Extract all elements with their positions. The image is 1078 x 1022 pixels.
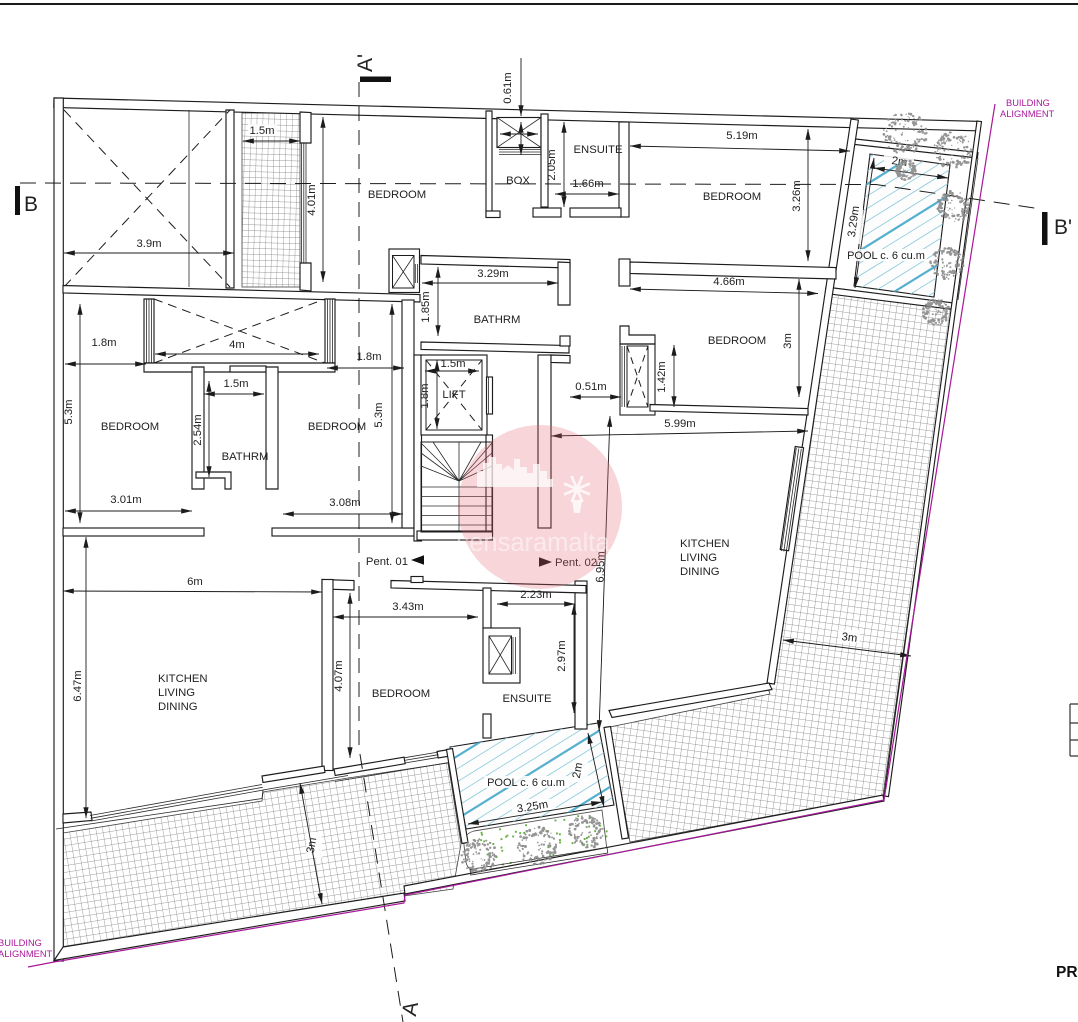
svg-text:1.42m: 1.42m bbox=[656, 361, 668, 392]
svg-text:4.66m: 4.66m bbox=[713, 276, 744, 288]
svg-text:3.01m: 3.01m bbox=[110, 494, 141, 506]
svg-text:BEDROOM: BEDROOM bbox=[368, 189, 426, 201]
svg-text:ALIGNMENT: ALIGNMENT bbox=[0, 949, 53, 959]
svg-text:POOL c. 6 cu.m: POOL c. 6 cu.m bbox=[847, 250, 925, 262]
svg-text:1.66m: 1.66m bbox=[572, 178, 603, 190]
svg-text:1.85m: 1.85m bbox=[420, 291, 432, 322]
svg-text:1.8m: 1.8m bbox=[419, 383, 431, 408]
svg-text:1.8m: 1.8m bbox=[356, 351, 381, 363]
svg-text:PR: PR bbox=[1056, 964, 1078, 981]
svg-text:BUILDING: BUILDING bbox=[0, 938, 42, 948]
svg-text:3.26m: 3.26m bbox=[791, 180, 803, 211]
svg-text:3.9m: 3.9m bbox=[136, 238, 161, 250]
svg-text:ALIGNMENT: ALIGNMENT bbox=[1000, 109, 1055, 119]
svg-text:DINING: DINING bbox=[158, 701, 198, 713]
svg-text:5.19m: 5.19m bbox=[726, 130, 757, 142]
svg-text:BEDROOM: BEDROOM bbox=[372, 688, 430, 700]
svg-text:5.3m: 5.3m bbox=[63, 399, 75, 424]
svg-text:BEDROOM: BEDROOM bbox=[101, 421, 159, 433]
svg-text:4.07m: 4.07m bbox=[333, 660, 345, 691]
svg-text:BEDROOM: BEDROOM bbox=[703, 191, 761, 203]
svg-text:2.54m: 2.54m bbox=[192, 414, 204, 445]
svg-text:4.01m: 4.01m bbox=[306, 184, 318, 215]
svg-text:ENSUITE: ENSUITE bbox=[503, 693, 552, 705]
svg-text:BATHRM: BATHRM bbox=[474, 314, 521, 326]
svg-text:2.23m: 2.23m bbox=[520, 589, 551, 601]
svg-text:KITCHEN: KITCHEN bbox=[158, 673, 208, 685]
svg-text:2.97m: 2.97m bbox=[556, 640, 568, 671]
svg-text:6.47m: 6.47m bbox=[72, 670, 84, 701]
svg-text:5.99m: 5.99m bbox=[664, 418, 695, 430]
svg-text:3.43m: 3.43m bbox=[392, 601, 423, 613]
svg-text:1.8m: 1.8m bbox=[91, 337, 116, 349]
svg-text:2.05m: 2.05m bbox=[546, 149, 558, 180]
svg-text:POOL c. 6 cu.m: POOL c. 6 cu.m bbox=[487, 777, 565, 789]
svg-text:3m: 3m bbox=[841, 631, 858, 645]
svg-text:LIVING: LIVING bbox=[680, 552, 717, 564]
svg-text:BEDROOM: BEDROOM bbox=[308, 421, 366, 433]
svg-text:0.51m: 0.51m bbox=[575, 381, 606, 393]
svg-text:B': B' bbox=[1054, 216, 1072, 239]
svg-text:1.5m: 1.5m bbox=[440, 358, 465, 370]
svg-text:B: B bbox=[24, 193, 38, 216]
svg-text:5.3m: 5.3m bbox=[373, 402, 385, 427]
svg-text:0.61m: 0.61m bbox=[502, 72, 514, 103]
svg-text:BOX: BOX bbox=[506, 175, 530, 187]
svg-text:DINING: DINING bbox=[680, 566, 720, 578]
svg-text:1.5m: 1.5m bbox=[223, 378, 248, 390]
svg-text:6m: 6m bbox=[187, 576, 203, 588]
svg-text:ENSUITE: ENSUITE bbox=[574, 144, 623, 156]
svg-text:1.5m: 1.5m bbox=[249, 125, 274, 137]
svg-text:LIVING: LIVING bbox=[158, 687, 195, 699]
svg-text:A': A' bbox=[354, 54, 377, 72]
svg-text:4m: 4m bbox=[229, 339, 245, 351]
svg-text:Pent. 01: Pent. 01 bbox=[366, 556, 408, 568]
svg-text:BEDROOM: BEDROOM bbox=[708, 335, 766, 347]
svg-text:sensaramalta: sensaramalta bbox=[456, 529, 610, 557]
svg-text:LIFT: LIFT bbox=[442, 389, 465, 401]
svg-text:BATHRM: BATHRM bbox=[222, 451, 269, 463]
svg-text:KITCHEN: KITCHEN bbox=[680, 538, 730, 550]
svg-text:BUILDING: BUILDING bbox=[1006, 98, 1050, 108]
svg-text:3m: 3m bbox=[782, 333, 794, 349]
svg-text:3.29m: 3.29m bbox=[477, 268, 508, 280]
svg-text:3.08m: 3.08m bbox=[329, 497, 360, 509]
